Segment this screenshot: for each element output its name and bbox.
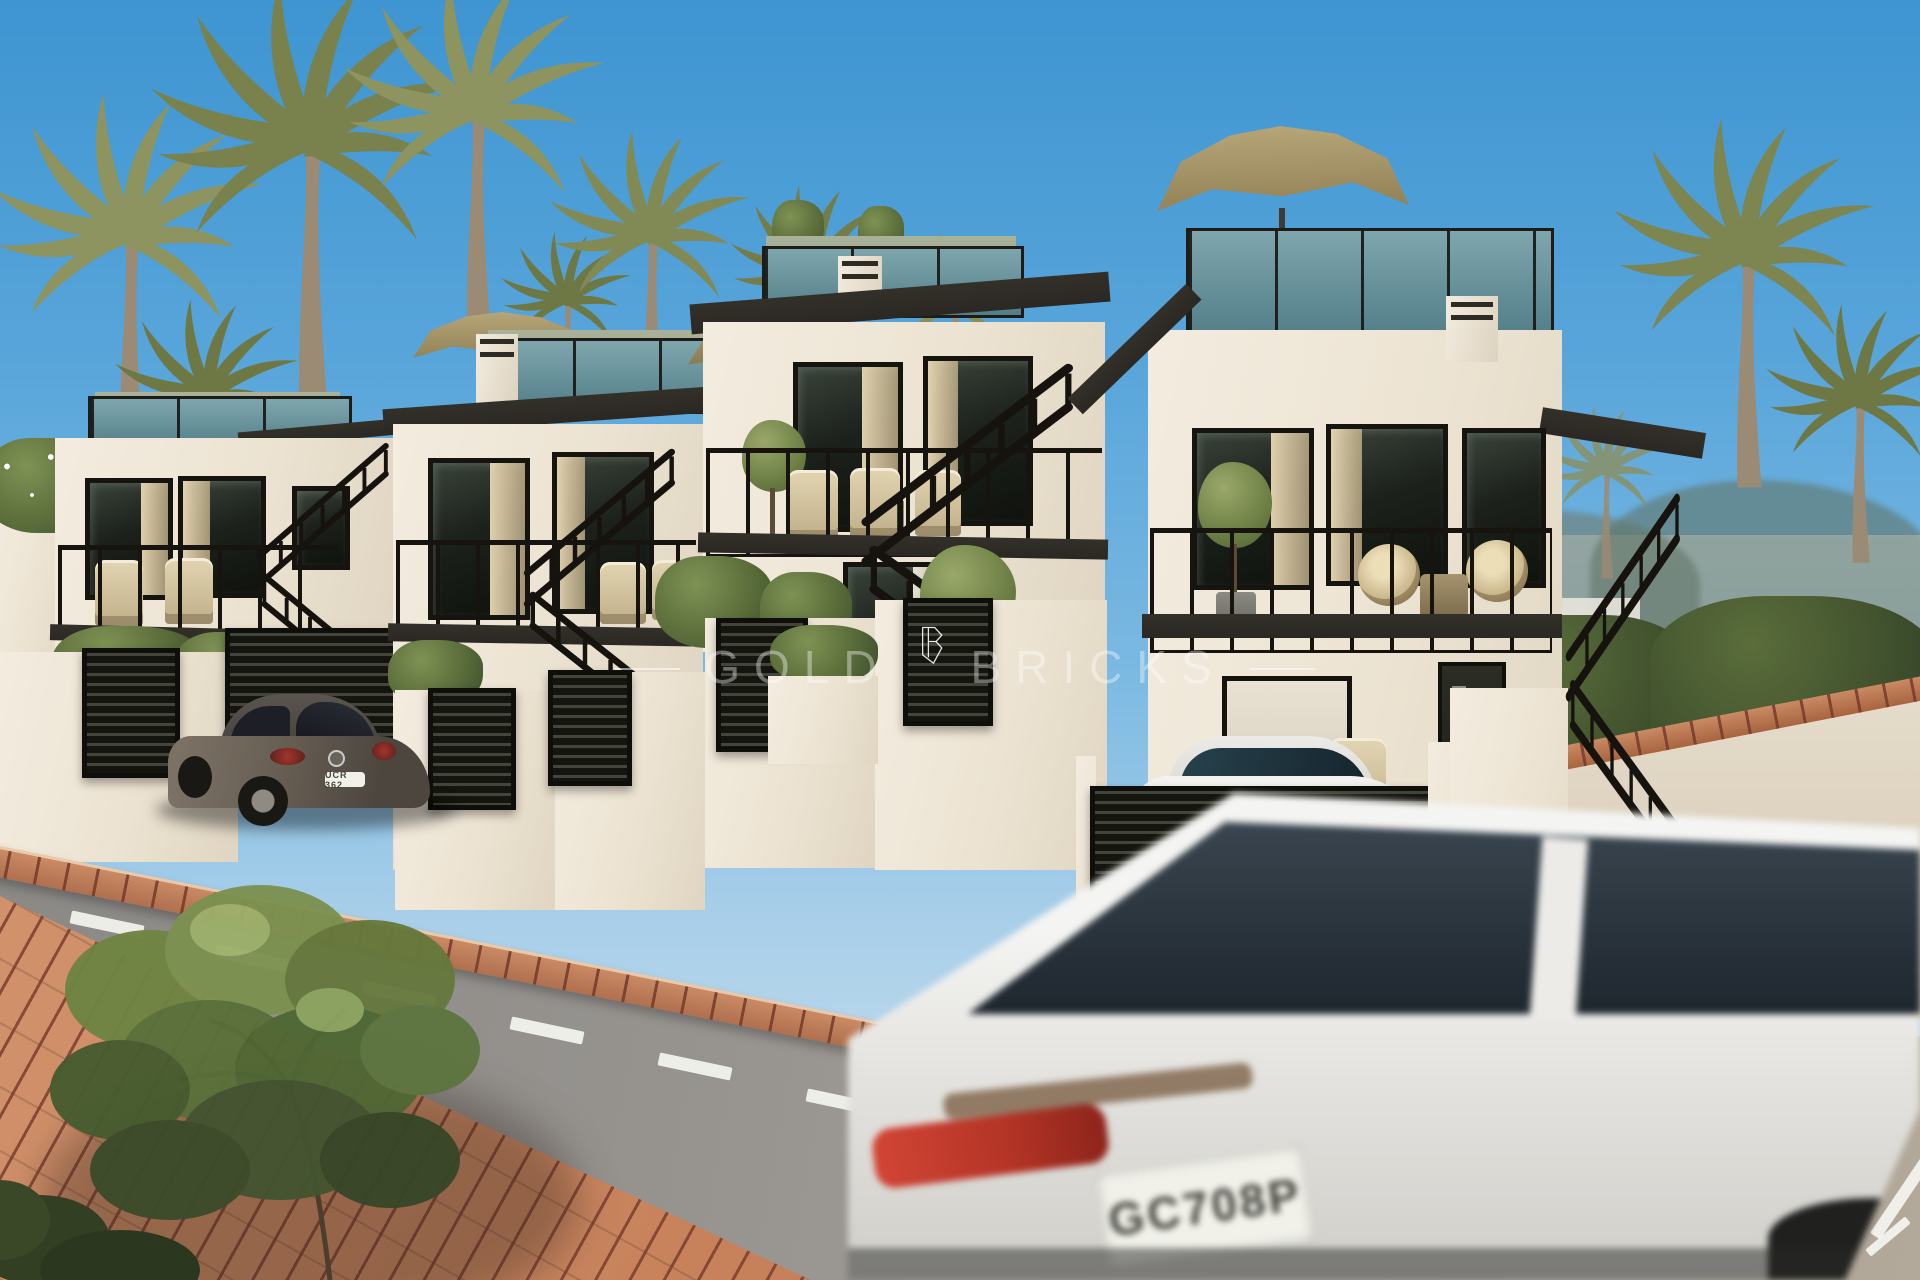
suv-windows (968, 814, 1920, 1014)
beetle-taillight (372, 742, 396, 760)
beetle-taillight (270, 748, 305, 765)
house-a-louver-gate (82, 648, 180, 778)
suv-taillight (870, 1102, 1111, 1190)
house-b-louver-gate (428, 688, 516, 810)
beetle-wheel (178, 756, 212, 798)
watermark-brand-left: GOLD (704, 644, 890, 690)
foreground-tree (0, 840, 560, 1280)
watermark-rule-left (615, 668, 680, 670)
house-d-roof-balustrade (1186, 228, 1554, 340)
architectural-render-scene: UCR 362 GC708P (0, 0, 1920, 1280)
beetle-plate-text: UCR 362 (325, 770, 365, 790)
gold-bricks-crest-icon (915, 592, 947, 700)
watermark-brand-right: BRICKS (970, 644, 1225, 690)
suv-body: GC708P (848, 778, 1920, 1280)
beetle-wheel (238, 776, 288, 826)
vw-badge-icon (328, 750, 345, 767)
house-d-chimney (1446, 296, 1498, 362)
beetle-car: UCR 362 (168, 690, 430, 832)
suv-plate-text: GC708P (1105, 1167, 1305, 1248)
watermark: GOLD BRICKS (615, 560, 1315, 710)
house-b-chimney (476, 334, 518, 404)
beetle-license-plate: UCR 362 (325, 772, 365, 787)
suv-car: GC708P (848, 778, 1920, 1280)
suv-lower-shadow (848, 1248, 1920, 1280)
watermark-rule-right (1250, 668, 1315, 670)
